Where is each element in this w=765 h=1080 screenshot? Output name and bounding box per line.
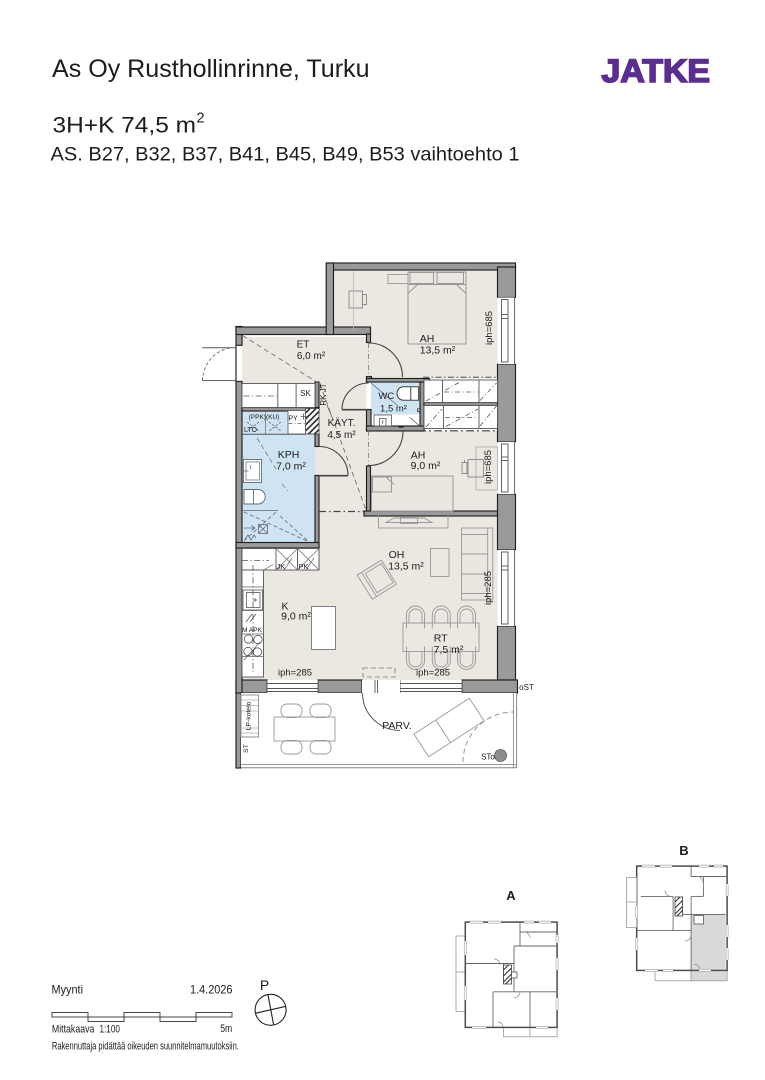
svg-text:(PPK)(KU): (PPK)(KU) xyxy=(249,414,280,421)
svg-text:ET: ET xyxy=(297,340,310,351)
svg-text:iph=285: iph=285 xyxy=(278,668,312,679)
svg-text:oST: oST xyxy=(519,683,534,692)
svg-text:iph=285: iph=285 xyxy=(416,668,450,679)
svg-text:AH: AH xyxy=(420,333,435,345)
svg-text:OH: OH xyxy=(389,549,405,561)
svg-text:2: 2 xyxy=(197,111,205,127)
svg-text:6,0 m²: 6,0 m² xyxy=(297,351,326,362)
svg-text:7,0 m²: 7,0 m² xyxy=(276,461,306,473)
svg-text:4,5 m²: 4,5 m² xyxy=(327,430,356,441)
svg-text:WC: WC xyxy=(378,391,394,402)
svg-text:7,5 m²: 7,5 m² xyxy=(434,644,464,656)
svg-text:13,5 m²: 13,5 m² xyxy=(388,561,424,573)
svg-text:P: P xyxy=(260,977,269,993)
svg-text:SK: SK xyxy=(300,389,311,398)
svg-text:B: B xyxy=(679,843,688,858)
svg-text:ST: ST xyxy=(243,744,250,753)
svg-text:PK: PK xyxy=(299,562,309,571)
svg-text:iph=285: iph=285 xyxy=(483,571,494,605)
svg-text:iph=685: iph=685 xyxy=(483,450,494,484)
svg-text:RK JT: RK JT xyxy=(319,383,328,405)
svg-text:KÄYT.: KÄYT. xyxy=(328,417,356,429)
svg-text:9,0 m²: 9,0 m² xyxy=(281,611,311,623)
svg-text:iph=685: iph=685 xyxy=(484,311,495,345)
svg-text:LP-kotelo: LP-kotelo xyxy=(246,701,253,730)
svg-text:PY: PY xyxy=(288,416,298,423)
svg-text:Mittakaava: Mittakaava xyxy=(52,1023,95,1035)
svg-text:Rakennuttaja pidättää oikeuden: Rakennuttaja pidättää oikeuden suunnitel… xyxy=(52,1040,239,1052)
svg-text:As Oy Rusthollinrinne, Turku: As Oy Rusthollinrinne, Turku xyxy=(52,55,370,83)
svg-text:5m: 5m xyxy=(220,1023,232,1035)
svg-text:RT: RT xyxy=(434,633,448,645)
svg-text:9,0 m²: 9,0 m² xyxy=(411,460,441,472)
svg-text:1:100: 1:100 xyxy=(100,1023,120,1035)
svg-text:3H+K 74,5 m: 3H+K 74,5 m xyxy=(53,113,197,138)
svg-text:13,5 m²: 13,5 m² xyxy=(420,345,456,357)
svg-text:PARV.: PARV. xyxy=(382,720,412,732)
svg-text:KPH: KPH xyxy=(278,449,300,461)
svg-text:STo: STo xyxy=(481,753,495,762)
svg-text:1.4.2026: 1.4.2026 xyxy=(190,984,233,996)
svg-text:JATKE: JATKE xyxy=(602,53,711,89)
svg-text:AS. B27, B32, B37, B41, B45, B: AS. B27, B32, B37, B41, B45, B49, B53 va… xyxy=(51,144,520,166)
svg-text:M APK: M APK xyxy=(242,627,263,634)
svg-text:A: A xyxy=(506,888,516,903)
svg-text:Myynti: Myynti xyxy=(52,983,84,997)
svg-text:JK: JK xyxy=(277,562,286,571)
svg-text:1,5 m²: 1,5 m² xyxy=(380,404,407,415)
